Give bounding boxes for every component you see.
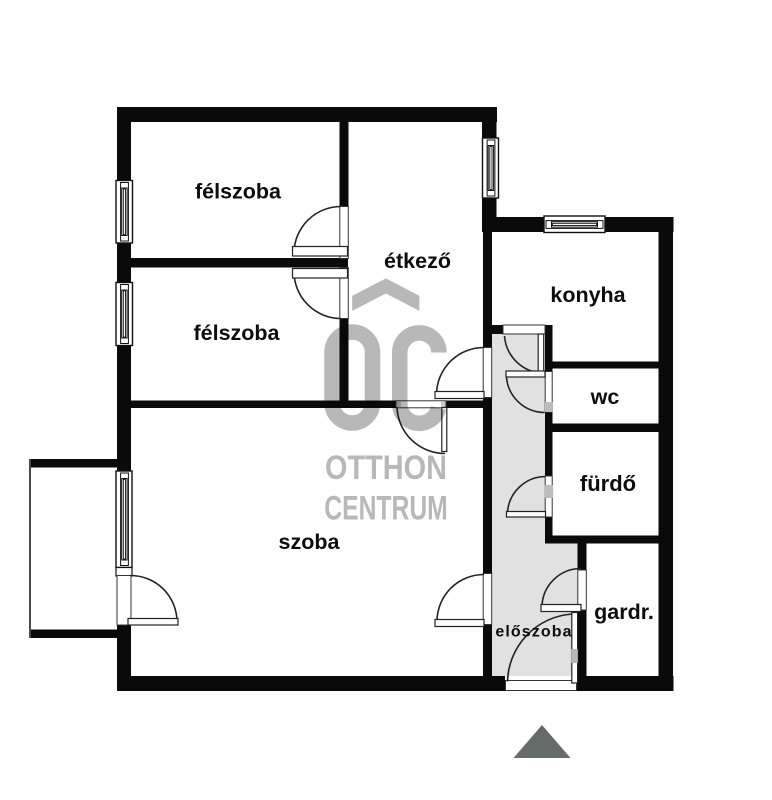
svg-text:CENTRUM: CENTRUM [324,490,448,528]
svg-text:konyha: konyha [550,283,626,307]
svg-text:előszoba: előszoba [495,624,572,641]
svg-text:félszoba: félszoba [195,180,282,204]
svg-text:szoba: szoba [279,530,341,554]
svg-text:OTTHON: OTTHON [325,449,447,487]
svg-text:étkező: étkező [384,249,451,273]
svg-text:wc: wc [590,385,620,409]
svg-text:fürdő: fürdő [580,471,636,496]
svg-text:félszoba: félszoba [193,321,280,345]
svg-text:gardr.: gardr. [594,600,654,624]
